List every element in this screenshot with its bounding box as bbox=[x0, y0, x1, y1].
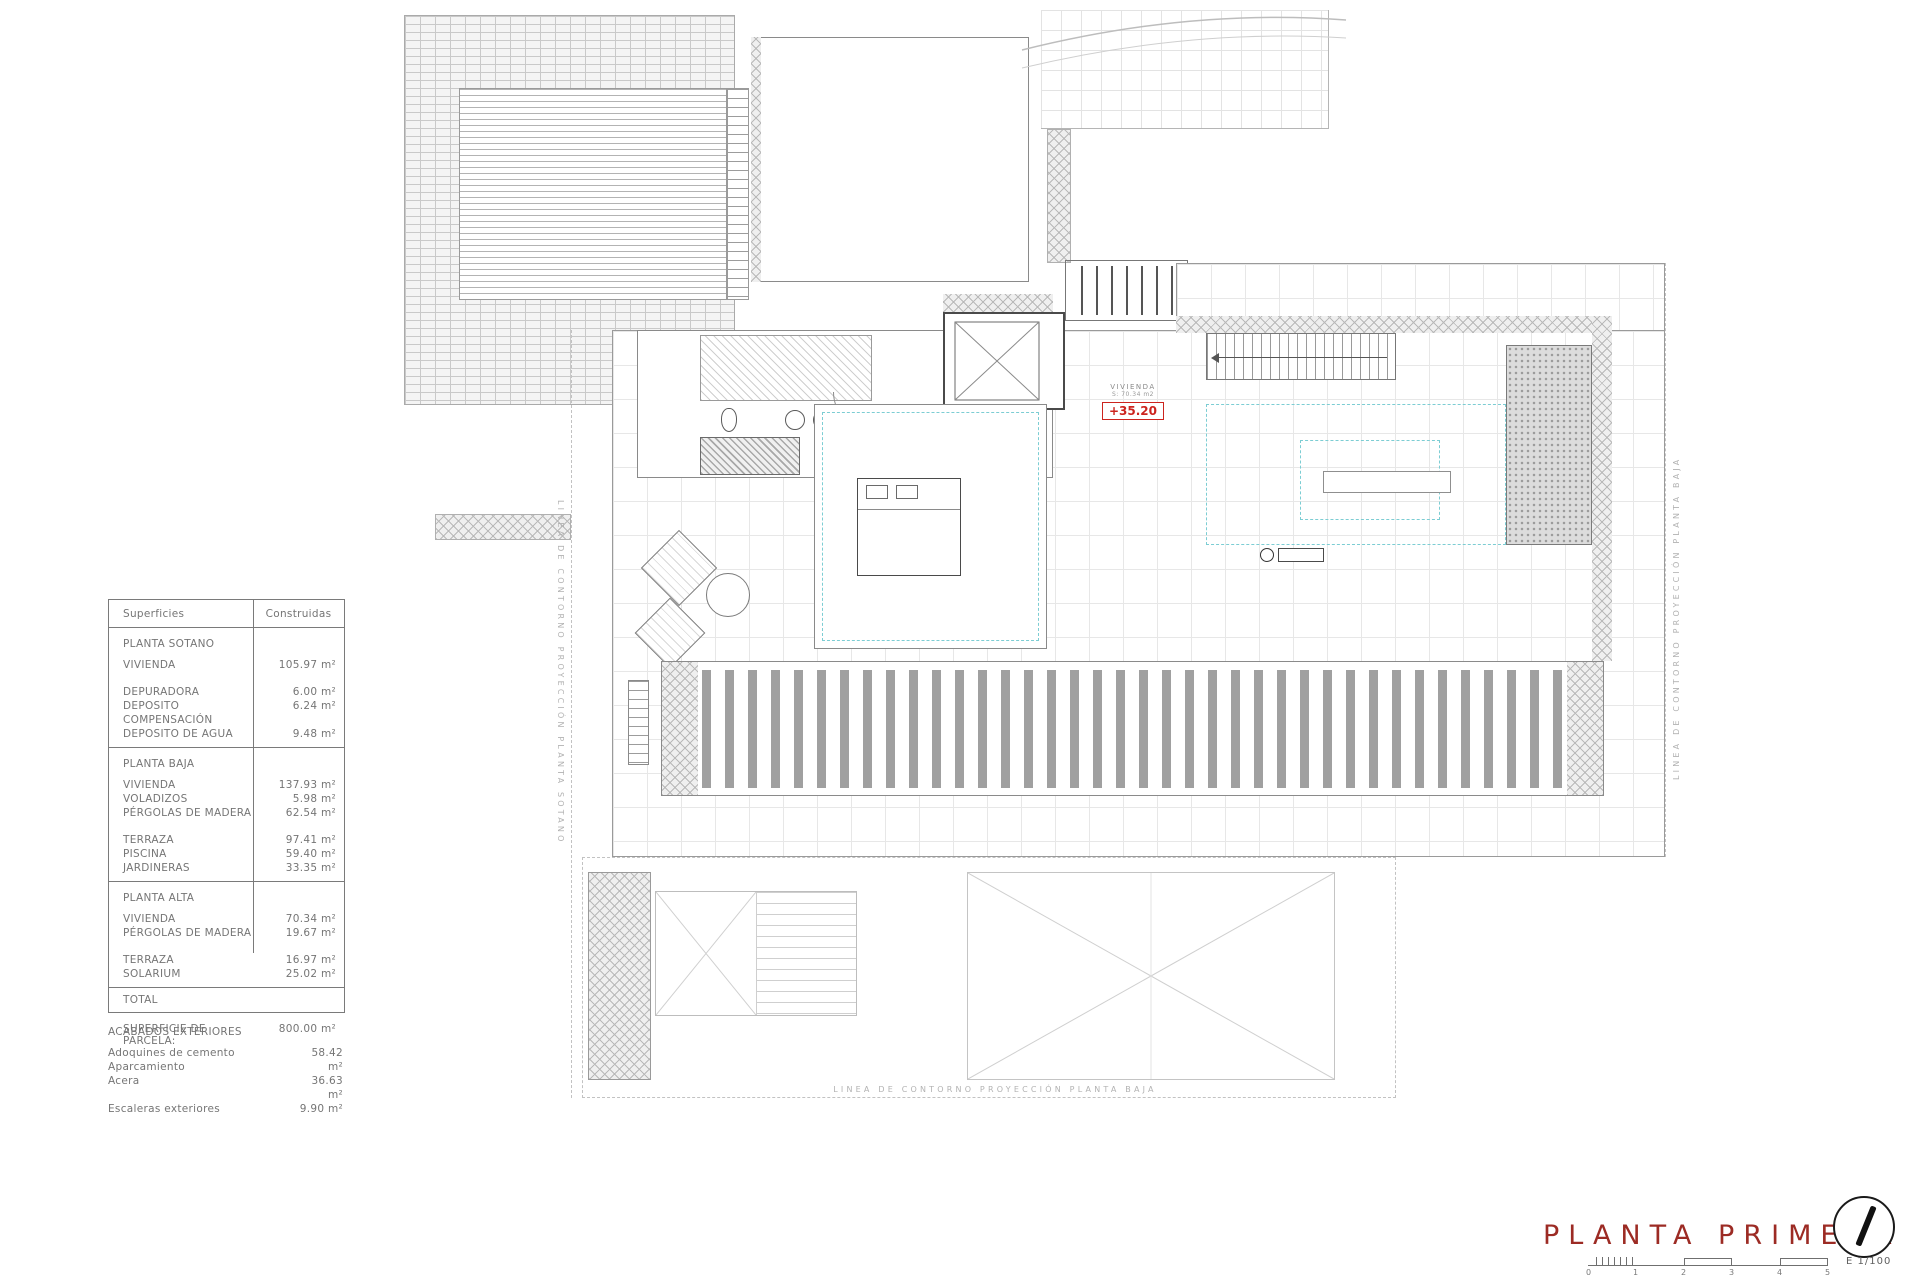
interior-stair bbox=[1206, 333, 1396, 380]
upper-stair bbox=[1065, 260, 1188, 321]
row-label: PÉRGOLAS DE MADERA bbox=[109, 926, 253, 940]
sink-icon bbox=[785, 410, 805, 430]
pergola-louvers bbox=[459, 88, 727, 300]
door-swing-lines bbox=[656, 892, 756, 1015]
row-value: 58.42 m² bbox=[293, 1046, 351, 1074]
patio-side-wall bbox=[751, 37, 761, 282]
row-value: 137.93 m² bbox=[253, 778, 344, 792]
header-superficies: Superficies bbox=[109, 608, 253, 620]
core-wall bbox=[943, 294, 1053, 312]
top-perimeter-wall bbox=[1176, 316, 1592, 333]
row-label: PÉRGOLAS DE MADERA bbox=[109, 806, 253, 820]
table-row: PÉRGOLAS DE MADERA 62.54 m² bbox=[109, 806, 344, 820]
scale-tick: 1 bbox=[1633, 1268, 1638, 1277]
finish-row: Escaleras exteriores 9.90 m² bbox=[108, 1102, 351, 1116]
scale-tick: 4 bbox=[1777, 1268, 1782, 1277]
table-row: TERRAZA 16.97 m² bbox=[109, 953, 344, 967]
table-row: VIVIENDA 70.34 m² bbox=[109, 912, 344, 926]
scale-tick: 2 bbox=[1681, 1268, 1686, 1277]
roof-projection-x bbox=[967, 872, 1335, 1080]
finish-row: Acera 36.63 m² bbox=[108, 1074, 351, 1102]
right-perimeter-wall bbox=[1592, 316, 1612, 661]
row-value: 25.02 m² bbox=[253, 967, 344, 981]
row-label: DEPURADORA bbox=[109, 685, 253, 699]
pergola-end-wall bbox=[1567, 662, 1603, 795]
row-value: 6.00 m² bbox=[253, 685, 344, 699]
table-row: DEPOSITO DE AGUA 9.48 m² bbox=[109, 727, 344, 741]
section-heading: PLANTA BAJA bbox=[109, 756, 344, 778]
row-value: 9.90 m² bbox=[293, 1102, 351, 1116]
row-value: 6.24 m² bbox=[253, 699, 344, 727]
table-row: DEPURADORA 6.00 m² bbox=[109, 685, 344, 699]
bed bbox=[857, 478, 961, 576]
pillow bbox=[896, 485, 918, 499]
lower-pillar bbox=[588, 872, 651, 1080]
row-label: TERRAZA bbox=[109, 833, 253, 847]
scale-tick: 5 bbox=[1825, 1268, 1830, 1277]
vanity-counter bbox=[700, 437, 800, 475]
upper-patio-volume bbox=[759, 37, 1029, 282]
exterior-finishes: ACABADOS EXTERIORES Adoquines de cemento… bbox=[108, 1026, 351, 1116]
lower-stair-room bbox=[655, 891, 857, 1016]
contour-label-bottom: LINEA DE CONTORNO PROYECCIÓN PLANTA BAJA bbox=[830, 1085, 1160, 1094]
x-brace-lines bbox=[968, 873, 1334, 1079]
table-row: VOLADIZOS 5.98 m² bbox=[109, 792, 344, 806]
elevation-tag: VIVIENDA S: 70.34 m2 +35.20 bbox=[1088, 383, 1178, 420]
table-header-row: Superficies Construidas bbox=[109, 600, 344, 628]
finish-row: Adoquines de cemento Aparcamiento 58.42 … bbox=[108, 1046, 351, 1074]
row-value: 105.97 m² bbox=[253, 658, 344, 672]
contour-label-right: LINEA DE CONTORNO PROYECCIÓN PLANTA BAJA bbox=[1672, 470, 1681, 780]
desk bbox=[1278, 548, 1324, 562]
graphic-scale-bar: 0 1 2 3 4 5 bbox=[1588, 1256, 1838, 1280]
stair-direction-line bbox=[1217, 357, 1387, 358]
blanket-line bbox=[858, 509, 960, 510]
row-value: 9.48 m² bbox=[253, 727, 344, 741]
row-label: DEPOSITO COMPENSACIÓN bbox=[109, 699, 253, 727]
contour-line-right bbox=[1665, 263, 1666, 857]
table-row: PISCINA 59.40 m² bbox=[109, 847, 344, 861]
table-column-divider bbox=[253, 600, 254, 953]
row-label: TERRAZA bbox=[109, 953, 253, 967]
row-label: VIVIENDA bbox=[109, 912, 253, 926]
total-row: TOTAL bbox=[109, 988, 344, 1013]
row-value: 5.98 m² bbox=[253, 792, 344, 806]
row-value: 97.41 m² bbox=[253, 833, 344, 847]
row-label: VOLADIZOS bbox=[109, 792, 253, 806]
scale-tick: 3 bbox=[1729, 1268, 1734, 1277]
pillow bbox=[866, 485, 888, 499]
contour-line-left bbox=[571, 330, 572, 1098]
row-label: VIVIENDA bbox=[109, 778, 253, 792]
pergola-end-wall bbox=[662, 662, 698, 795]
section-heading: PLANTA ALTA bbox=[109, 890, 344, 912]
pergola-band bbox=[661, 661, 1604, 796]
lower-stair-treads bbox=[756, 892, 856, 1015]
unit-area: S: 70.34 m2 bbox=[1088, 391, 1178, 398]
unit-label: VIVIENDA bbox=[1088, 383, 1178, 391]
row-label: Adoquines de cemento Aparcamiento bbox=[108, 1046, 293, 1074]
scale-step-segment bbox=[1684, 1258, 1732, 1266]
row-label: Escaleras exteriores bbox=[108, 1102, 293, 1116]
table-row: SOLARIUM 25.02 m² bbox=[109, 967, 344, 981]
row-value: 36.63 m² bbox=[293, 1074, 351, 1102]
elevator-core bbox=[943, 312, 1065, 410]
round-table bbox=[706, 573, 750, 617]
pergola-slats bbox=[702, 670, 1562, 788]
table-row: VIVIENDA 137.93 m² bbox=[109, 778, 344, 792]
scale-tick: 0 bbox=[1586, 1268, 1591, 1277]
section-heading: PLANTA SOTANO bbox=[109, 636, 344, 658]
row-value: 19.67 m² bbox=[253, 926, 344, 940]
section-planta-alta: PLANTA ALTA VIVIENDA 70.34 m² PÉRGOLAS D… bbox=[109, 882, 344, 988]
north-needle bbox=[1855, 1205, 1876, 1246]
elevator-x bbox=[945, 314, 1063, 408]
north-arrow-icon bbox=[1833, 1196, 1895, 1258]
scale-ratio-label: E 1/100 bbox=[1846, 1256, 1891, 1267]
contour-label-left: LINEA DE CONTORNO PROYECCIÓN PLANTA SOTA… bbox=[556, 500, 565, 810]
areas-table: Superficies Construidas PLANTA SOTANO VI… bbox=[108, 599, 345, 1013]
row-value: 70.34 m² bbox=[253, 912, 344, 926]
side-ladder bbox=[628, 680, 649, 765]
planter-dark bbox=[1506, 345, 1592, 545]
row-label: Acera bbox=[108, 1074, 293, 1102]
table-row: DEPOSITO COMPENSACIÓN 6.24 m² bbox=[109, 699, 344, 727]
row-label: SOLARIUM bbox=[109, 967, 253, 981]
sheet: VIVIENDA S: 70.34 m2 +35.20 bbox=[0, 0, 1920, 1280]
row-label: VIVIENDA bbox=[109, 658, 253, 672]
section-planta-sotano: PLANTA SOTANO VIVIENDA 105.97 m² DEPURAD… bbox=[109, 628, 344, 748]
chair-icon bbox=[1260, 548, 1274, 562]
row-value: 16.97 m² bbox=[253, 953, 344, 967]
shelf-below bbox=[1323, 471, 1451, 493]
header-construidas: Construidas bbox=[253, 608, 344, 620]
scale-comb-segment bbox=[1596, 1257, 1636, 1266]
row-value: 59.40 m² bbox=[253, 847, 344, 861]
table-row: JARDINERAS 33.35 m² bbox=[109, 861, 344, 875]
exterior-finishes-heading: ACABADOS EXTERIORES bbox=[108, 1026, 351, 1038]
table-row: TERRAZA 97.41 m² bbox=[109, 833, 344, 847]
row-label: DEPOSITO DE AGUA bbox=[109, 727, 253, 741]
stair-arrow-icon bbox=[1211, 353, 1219, 363]
retaining-wall-strip bbox=[435, 514, 571, 540]
row-value: 33.35 m² bbox=[253, 861, 344, 875]
section-planta-baja: PLANTA BAJA VIVIENDA 137.93 m² VOLADIZOS… bbox=[109, 748, 344, 882]
row-value: 62.54 m² bbox=[253, 806, 344, 820]
plot-curved-edge bbox=[1020, 6, 1350, 126]
roof-side-wall bbox=[1047, 129, 1071, 263]
exterior-stair-strip bbox=[727, 88, 749, 300]
row-label: PISCINA bbox=[109, 847, 253, 861]
toilet-icon bbox=[721, 408, 737, 432]
table-row: VIVIENDA 105.97 m² bbox=[109, 658, 344, 672]
scale-step-segment bbox=[1780, 1258, 1828, 1266]
elevation-value: +35.20 bbox=[1102, 402, 1164, 420]
table-row: PÉRGOLAS DE MADERA 19.67 m² bbox=[109, 926, 344, 940]
row-label: JARDINERAS bbox=[109, 861, 253, 875]
